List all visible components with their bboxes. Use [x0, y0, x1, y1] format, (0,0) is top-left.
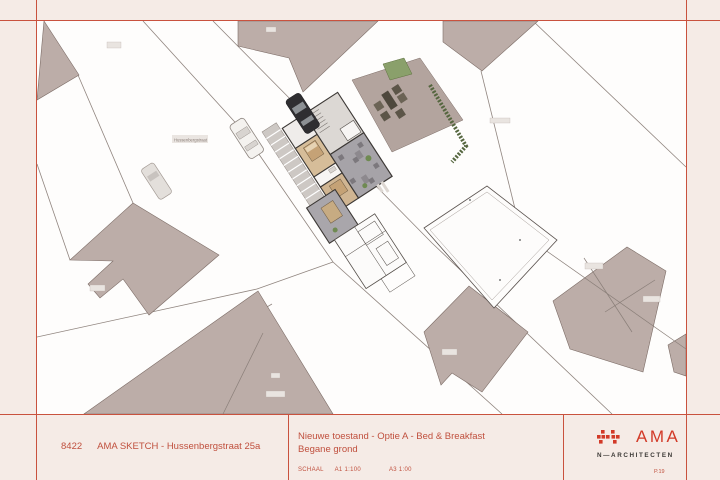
logo-subtext: N—ARCHITECTEN — [597, 452, 674, 459]
titleblock-project: 8422 AMA SKETCH - Hussenbergstraat 25a — [37, 415, 288, 480]
street-label-text: Hussenbergstraat — [174, 138, 208, 143]
car-white — [229, 117, 265, 160]
building-bottom-left — [84, 291, 333, 414]
scale-a1: A1 1:100 — [335, 467, 361, 473]
site-plan: Hussenbergstraat — [0, 0, 720, 480]
frame-line-left — [36, 0, 37, 480]
scale-label: SCHAAL — [298, 467, 324, 473]
ama-logo-icon — [596, 429, 630, 446]
drawing-title-line1: Nieuwe toestand - Optie A - Bed & Breakf… — [298, 430, 563, 443]
scale-a3: A3 1:00 — [389, 467, 412, 473]
building-bottom-mid — [424, 286, 528, 392]
drawing-sheet: Hussenbergstraat 8422 AMA SKETCH - Husse… — [0, 0, 720, 480]
street-label: Hussenbergstraat — [172, 135, 208, 143]
frame-line-right — [686, 0, 687, 480]
frame-line-top — [0, 20, 720, 21]
scale-row: SCHAAL A1 1:100 A3 1:00 — [298, 464, 412, 477]
project-title: AMA SKETCH - Hussenbergstraat 25a — [97, 441, 260, 480]
building-left-l-shape — [70, 203, 219, 315]
page-number: P.19 — [654, 469, 665, 475]
building-top-wedge — [443, 21, 538, 71]
project-number: 8422 — [61, 441, 82, 480]
barn-outline — [424, 186, 557, 308]
car-gray — [140, 162, 172, 200]
drawing-title-line2: Begane grond — [298, 443, 563, 456]
building-top-left — [37, 21, 79, 100]
titleblock-logo: AMA N—ARCHITECTEN P.19 — [563, 415, 686, 480]
building-right-edge — [668, 334, 686, 376]
logo-text: AMA — [636, 427, 680, 447]
titleblock-drawing: Nieuwe toestand - Optie A - Bed & Breakf… — [289, 415, 563, 480]
